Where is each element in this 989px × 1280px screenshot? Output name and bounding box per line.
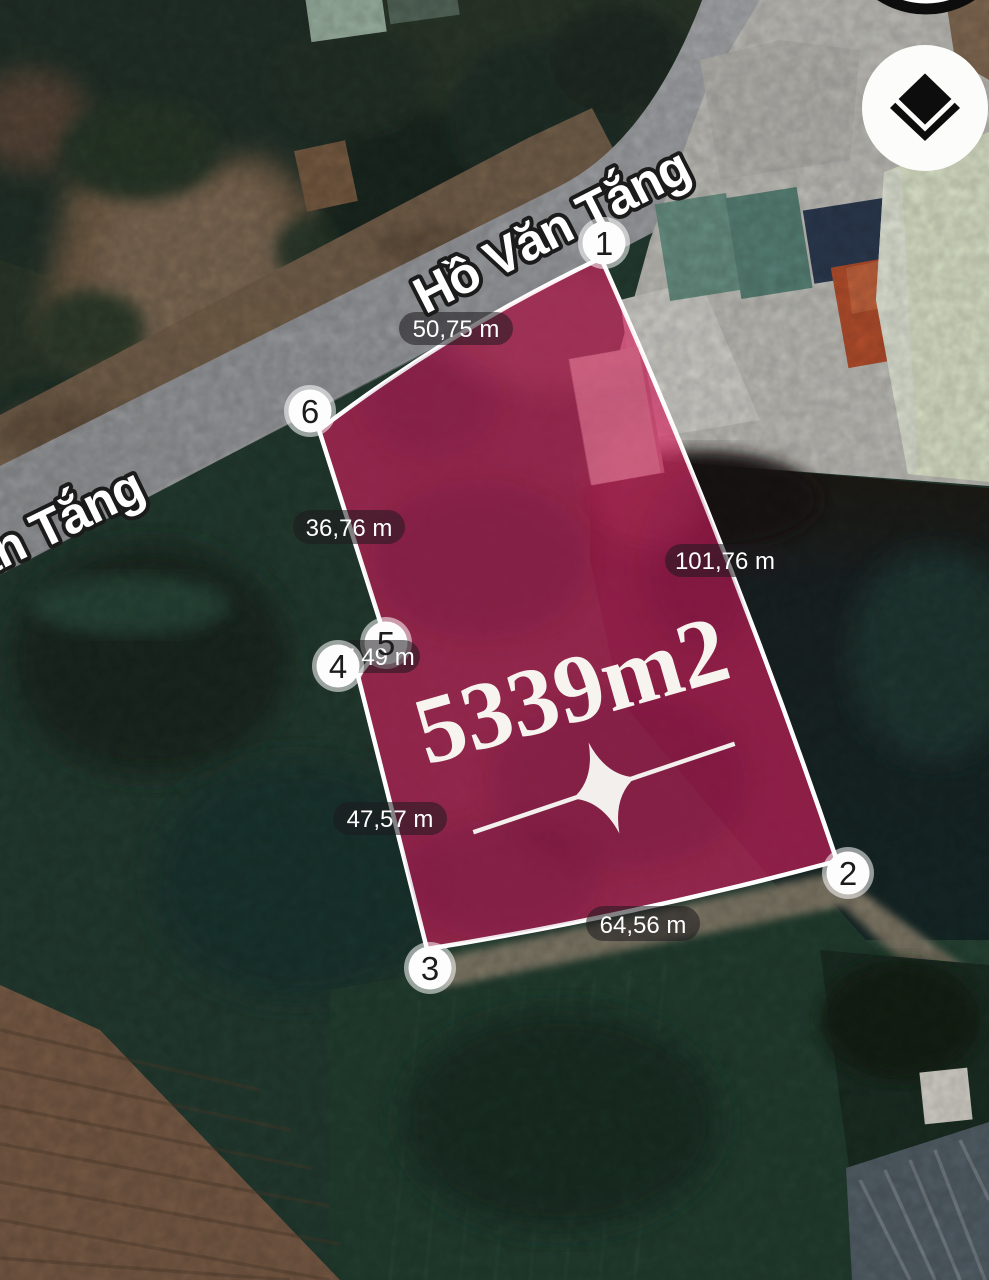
svg-text:1: 1 bbox=[595, 225, 613, 262]
svg-text:3: 3 bbox=[421, 950, 439, 987]
svg-text:101,76 m: 101,76 m bbox=[675, 548, 775, 575]
svg-text:47,57 m: 47,57 m bbox=[347, 806, 434, 833]
svg-text:5: 5 bbox=[377, 625, 395, 662]
svg-text:2: 2 bbox=[839, 855, 857, 892]
svg-text:50,75 m: 50,75 m bbox=[413, 316, 500, 343]
svg-text:4: 4 bbox=[329, 648, 347, 685]
svg-text:36,76 m: 36,76 m bbox=[306, 515, 393, 542]
svg-text:6: 6 bbox=[301, 393, 319, 430]
svg-text:64,56 m: 64,56 m bbox=[600, 912, 687, 939]
